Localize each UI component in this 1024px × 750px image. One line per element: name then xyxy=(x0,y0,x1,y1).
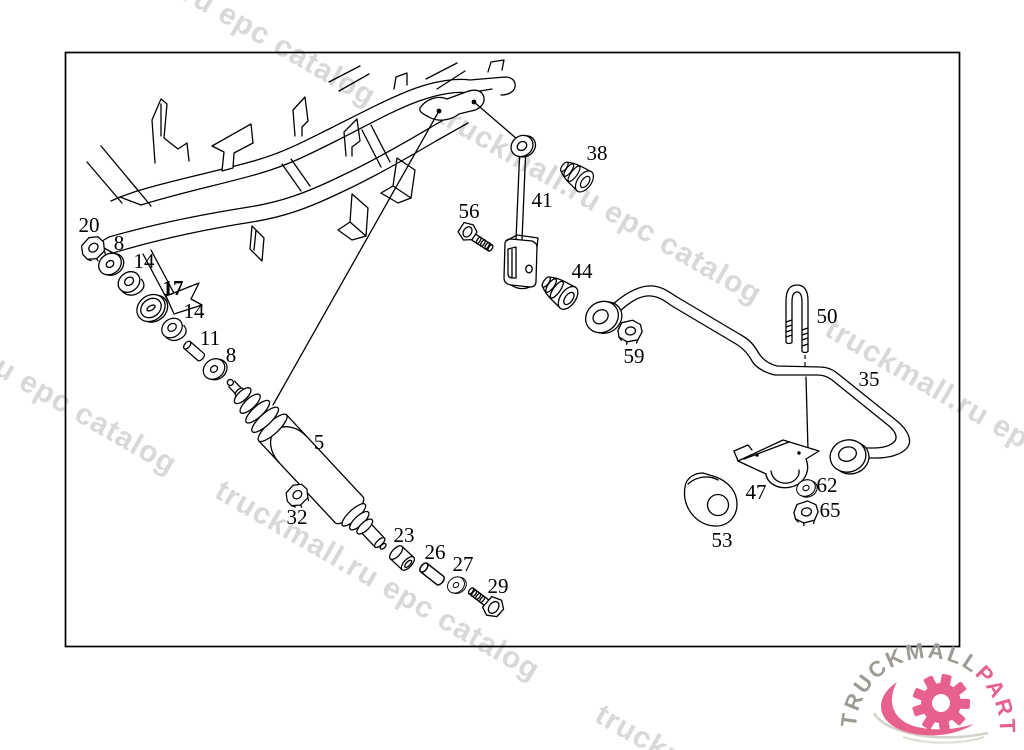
u-bolt-leader xyxy=(806,377,808,450)
shock-absorber xyxy=(214,367,398,560)
exploded-parts-diagram: 2081417141185322326272956413844595035475… xyxy=(0,0,1024,750)
part-label-8: 8 xyxy=(114,231,125,255)
part-label-56: 56 xyxy=(459,199,480,223)
part-label-17: 17 xyxy=(163,276,184,300)
part-label-29: 29 xyxy=(488,574,509,598)
part-label-50: 50 xyxy=(817,304,838,328)
part-label-14: 14 xyxy=(134,249,156,273)
nut-59 xyxy=(617,319,643,345)
leader-lines xyxy=(273,100,517,405)
part-label-23: 23 xyxy=(394,523,415,547)
part-label-65: 65 xyxy=(820,498,841,522)
part-label-59: 59 xyxy=(624,344,645,368)
logo-text-truckmall: TRUCKMALL xyxy=(836,637,985,728)
part-label-62: 62 xyxy=(817,473,838,497)
nut-65 xyxy=(792,500,820,527)
washer-27 xyxy=(444,573,469,598)
u-bolt-50 xyxy=(786,285,808,353)
part-label-11: 11 xyxy=(200,326,220,350)
bar-bushing-53 xyxy=(684,473,737,526)
part-label-20: 20 xyxy=(79,213,100,237)
parts-catalog-page: truckmall.ru epc catalogtruckmall.ru epc… xyxy=(0,0,1024,750)
part-label-53: 53 xyxy=(712,528,733,552)
part-label-27: 27 xyxy=(453,552,474,576)
part-label-44: 44 xyxy=(572,259,594,283)
bushing-23 xyxy=(387,544,416,573)
bolt-56 xyxy=(456,220,498,256)
chassis-frame xyxy=(87,60,515,314)
part-label-47: 47 xyxy=(746,480,767,504)
pin-26 xyxy=(418,562,446,587)
part-labels: 2081417141185322326272956413844595035475… xyxy=(79,141,880,598)
part-label-26: 26 xyxy=(425,540,446,564)
part-label-41: 41 xyxy=(532,188,553,212)
part-label-14: 14 xyxy=(184,299,206,323)
link-clevis xyxy=(504,235,538,289)
part-label-8: 8 xyxy=(226,343,237,367)
part-label-32: 32 xyxy=(287,505,308,529)
part-label-35: 35 xyxy=(859,367,880,391)
link-rod xyxy=(516,157,526,240)
part-label-38: 38 xyxy=(587,141,608,165)
part-label-5: 5 xyxy=(314,430,325,454)
